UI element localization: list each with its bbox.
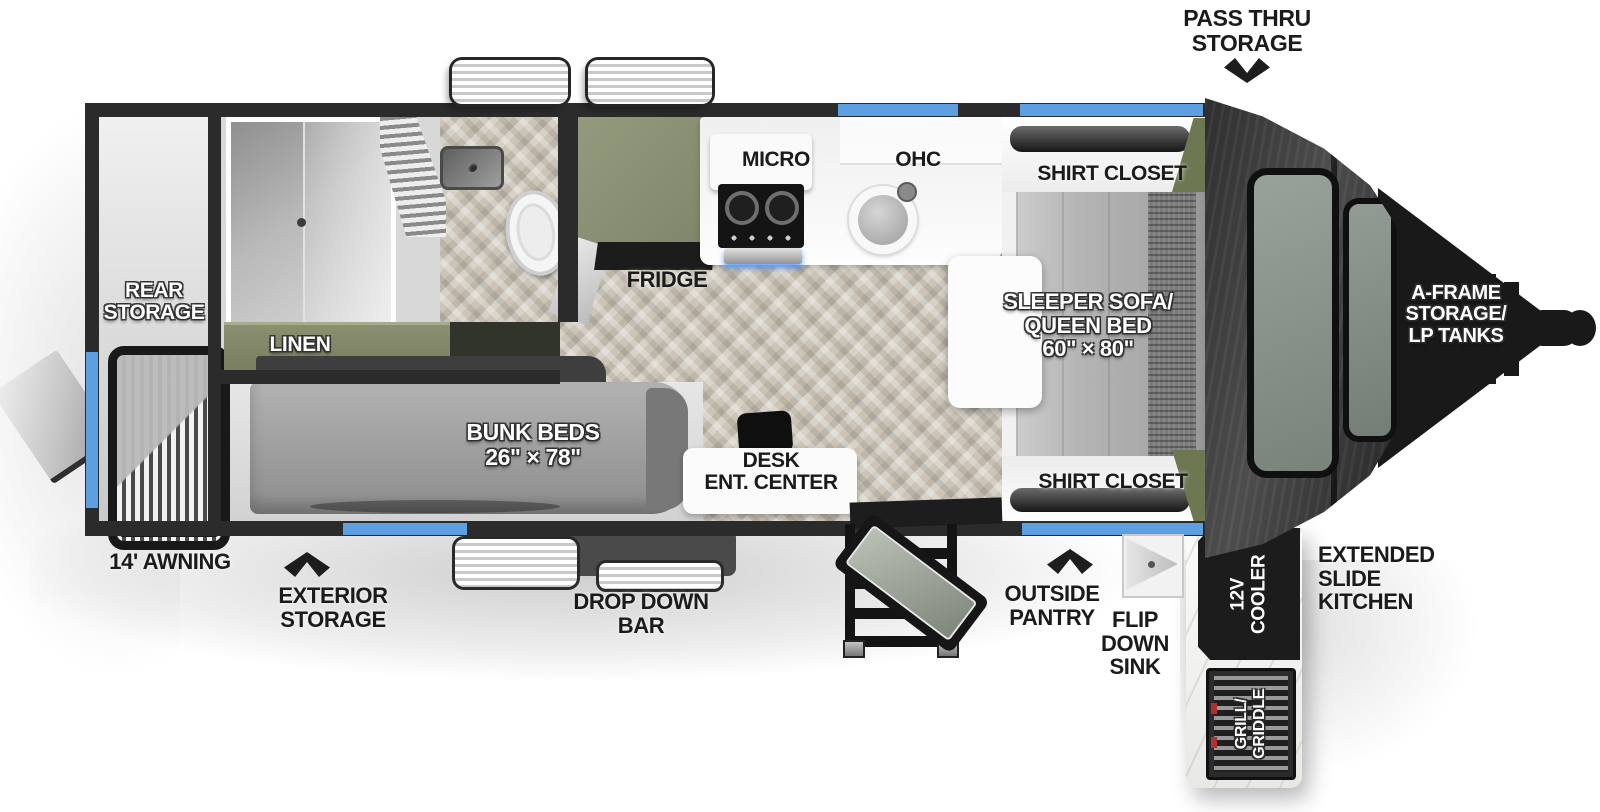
wall-linen-bottom [208,370,560,384]
wall-bath-kitchen [558,117,578,322]
shower-door [303,122,393,324]
label-pass-thru-storage: PASS THRU STORAGE [1183,6,1311,55]
cooktop [718,184,804,248]
label-bunk-beds: BUNK BEDS 26" × 78" [466,420,599,469]
flip-down-sink [1122,534,1184,598]
label-drop-down-bar: DROP DOWN BAR [573,590,708,637]
roof-vent-1 [452,60,568,104]
front-cap-window-2 [1343,198,1397,442]
roof-vent-2 [588,60,712,104]
kitchen-sink [849,186,917,254]
bunk-end-cap [646,388,688,510]
window-bottom-1 [343,523,467,535]
burner-right [765,191,799,225]
label-shirt-closet-bottom: SHIRT CLOSET [1038,471,1187,493]
cargo-rack-panel [117,355,221,541]
step-foot-left [843,640,865,658]
hitch-ball [1564,310,1596,346]
label-awning: 14' AWNING [109,550,230,574]
floorplan-canvas: 12V COOLER GRILL/ GRIDDLE PASS THRU STOR… [0,0,1600,812]
shower [226,117,396,329]
label-sleeper-sofa: SLEEPER SOFA/ QUEEN BED 60" × 80" [1003,290,1173,361]
cooktop-knobs [728,234,794,242]
label-rear-storage: REAR STORAGE [104,280,205,325]
oven-drawer-front [724,248,802,264]
label-fridge: FRIDGE [627,268,708,292]
label-flip-down-sink: FLIP DOWN SINK [1101,608,1169,679]
sink-faucet [897,182,917,202]
window-top-1 [838,104,958,116]
front-cap-window-1 [1247,168,1339,478]
label-extended-slide-kitchen: EXTENDED SLIDE KITCHEN [1318,543,1435,614]
closet-rod-top [1010,126,1190,152]
drop-down-bar-shelf-2 [596,560,724,592]
wall-rear-divider [208,117,221,521]
flip-sink-drain [1148,561,1155,568]
burner-left [725,191,759,225]
window-top-2 [1020,104,1203,116]
window-rear [86,352,98,508]
bunk-shadow [310,500,560,513]
grill-griddle-label: GRILL/ GRIDDLE [1233,689,1269,759]
grill-griddle: GRILL/ GRIDDLE [1206,668,1296,780]
label-linen: LINEN [269,334,330,356]
drop-down-bar-shelf-1 [452,536,580,590]
bathroom-faucet [467,162,477,172]
label-outside-pantry: OUTSIDE PANTRY [1005,582,1100,629]
chevron-down-icon [1224,58,1270,83]
label-exterior-storage: EXTERIOR STORAGE [278,584,387,631]
label-micro: MICRO [742,149,810,171]
label-a-frame-storage: A-FRAME STORAGE/ LP TANKS [1406,283,1507,347]
shower-door-handle [297,218,306,227]
bathroom-sink [440,146,504,190]
fridge-base [594,242,716,270]
label-ohc: OHC [895,149,940,171]
label-shirt-closet-top: SHIRT CLOSET [1037,163,1186,185]
grill-label-wrap: GRILL/ GRIDDLE [1209,671,1293,777]
toilet-seat [512,200,559,264]
label-desk-ent-center: DESK ENT. CENTER [704,450,837,495]
sink-bowl [858,195,908,245]
cooler-12v-label: 12V COOLER [1228,554,1271,633]
